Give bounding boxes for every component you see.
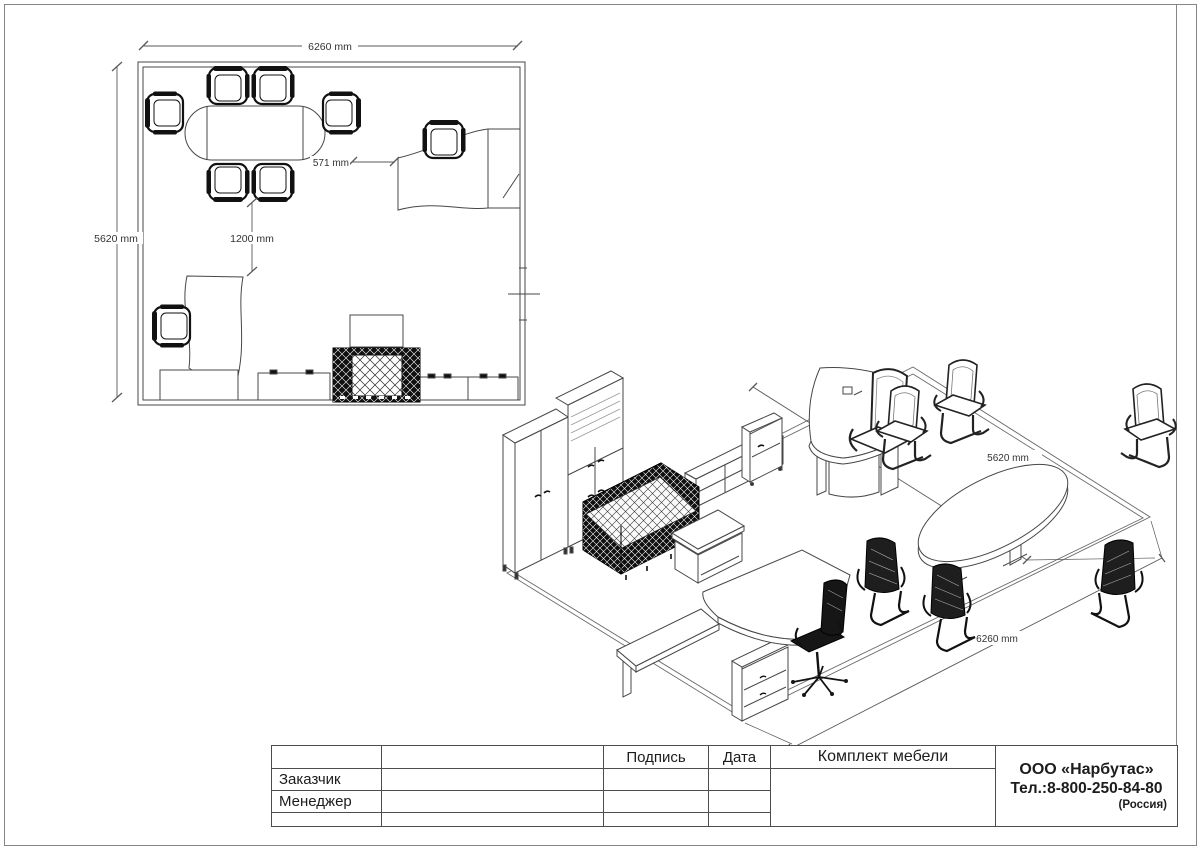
iso-exec-pedestal [742,413,782,486]
tb-empty-cell [770,768,996,827]
iso-dim-depth-label: 5620 mm [987,453,1029,464]
plan-chair [323,92,361,135]
tb-empty-cell [271,812,382,827]
tb-empty-cell [603,768,709,791]
plan-cabinet-right-1 [420,374,468,400]
tb-empty-cell [603,790,709,813]
plan-dim-passage-label: 1200 mm [230,233,274,245]
tb-document-title: Комплект мебели [770,745,996,769]
plan-chair [207,66,250,104]
plan-chair [252,164,295,202]
plan-chair [145,92,183,135]
plan-dim-depth-label: 5620 mm [94,233,138,245]
plan-chair-reception [423,120,466,158]
iso-conference-chair [934,360,989,443]
iso-conference-chair [1121,384,1176,467]
iso-desk-pedestal [732,639,788,721]
tb-empty-cell [381,790,604,813]
tb-empty-cell [603,812,709,827]
tb-empty-cell [708,768,771,791]
company-name: ООО «Нарбутас» [1019,761,1153,779]
iso-conference-chair [857,538,909,625]
plan-dim-width-label: 6260 mm [308,41,352,53]
iso-wardrobe-left [503,409,568,579]
plan-chair-desk [152,305,190,348]
tb-empty-cell [381,768,604,791]
iso-conference-table-group [857,360,1175,651]
iso-conference-table [904,445,1082,589]
tb-empty-cell [271,745,382,769]
tb-empty-cell [381,745,604,769]
plan-dim-gap-label: 571 mm [313,158,349,169]
plan-sofa [333,348,420,402]
tb-manager-label: Менеджер [271,790,382,813]
plan-chair [252,66,295,104]
tb-signature-header: Подпись [603,745,709,769]
plan-chair [207,164,250,202]
drawing-sheet: 6260 mm 5620 mm 571 mm 1200 mm [0,0,1200,850]
floor-plan-view: 6260 mm 5620 mm 571 mm 1200 mm [90,30,550,420]
plan-coffee-table [350,315,403,347]
tb-empty-cell [381,812,604,827]
iso-dim-width-label: 6260 mm [976,634,1018,645]
company-phone: Тел.:8-800-250-84-80 [1010,780,1162,798]
plan-window [508,268,540,320]
tb-company-cell: ООО «Нарбутас» Тел.:8-800-250-84-80 (Рос… [995,745,1178,827]
tb-date-header: Дата [708,745,771,769]
plan-conference-table [185,106,325,160]
tb-empty-cell [708,812,771,827]
tb-customer-label: Заказчик [271,768,382,791]
iso-conference-chair [1091,540,1143,627]
iso-view: 5620 mm 6260 mm [495,345,1185,745]
tb-empty-cell [708,790,771,813]
company-country: (Россия) [1119,799,1178,811]
plan-credenza [258,370,330,400]
